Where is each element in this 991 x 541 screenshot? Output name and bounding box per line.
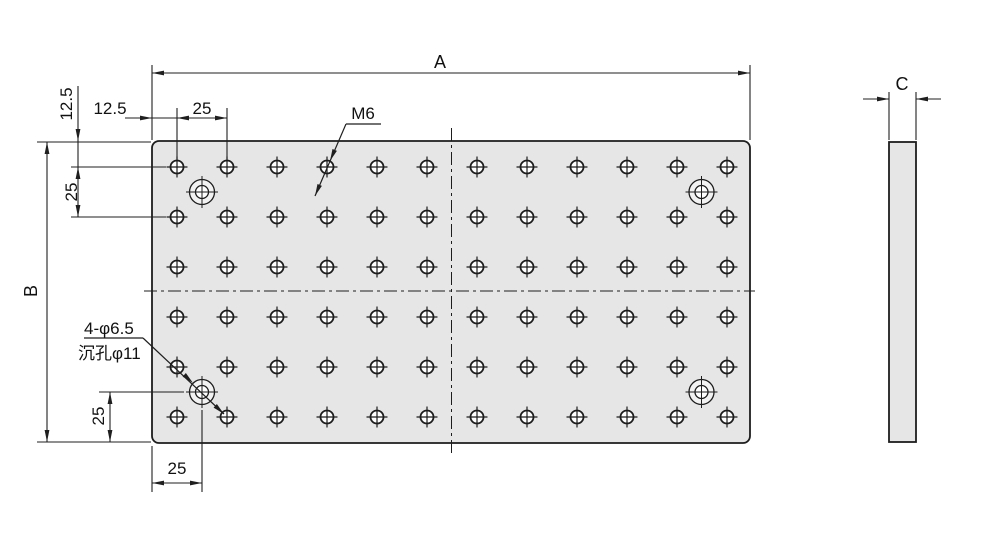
dimension-arrowhead-icon: [45, 430, 50, 442]
dimension-arrowhead-icon: [76, 129, 81, 141]
dimension-arrowhead-icon: [916, 97, 928, 102]
dimension-arrowhead-icon: [190, 481, 202, 486]
thread-callout-label: M6: [351, 104, 375, 123]
dim-12-5-horizontal-label: 12.5: [93, 99, 126, 118]
dim-25-top-label: 25: [193, 99, 212, 118]
side-view-face: [889, 142, 916, 442]
cbore-callout-line1: 4-φ6.5: [84, 319, 134, 338]
dimension-arrowhead-icon: [177, 116, 189, 121]
dimension-arrowhead-icon: [215, 116, 227, 121]
dimension-arrowhead-icon: [152, 481, 164, 486]
technical-drawing: A B C 12.5 12.5 25 25 25 25 M6 4-φ6.5 沉孔…: [0, 0, 991, 541]
dimension-arrowhead-icon: [152, 71, 164, 76]
dimension-arrowhead-icon: [738, 71, 750, 76]
dimension-arrowhead-icon: [108, 430, 113, 442]
dim-12-5-vertical-label: 12.5: [57, 87, 76, 120]
dim-b-label: B: [21, 285, 41, 297]
dimension-arrowhead-icon: [877, 97, 889, 102]
dimension-arrowhead-icon: [76, 167, 81, 179]
dim-25-bottom-label: 25: [168, 459, 187, 478]
dim-25-bottom-left-label: 25: [89, 407, 108, 426]
dimension-arrowhead-icon: [76, 205, 81, 217]
dimension-arrowhead-icon: [108, 392, 113, 404]
dim-c-label: C: [896, 74, 909, 94]
dim-a-label: A: [434, 52, 446, 72]
cbore-callout-line2: 沉孔φ11: [78, 344, 141, 363]
dimension-arrowhead-icon: [140, 116, 152, 121]
dim-25-left-label: 25: [62, 183, 81, 202]
drawing-canvas: A B C 12.5 12.5 25 25 25 25 M6 4-φ6.5 沉孔…: [0, 0, 991, 541]
dimension-arrowhead-icon: [45, 142, 50, 154]
drawing-linework: [37, 65, 941, 492]
